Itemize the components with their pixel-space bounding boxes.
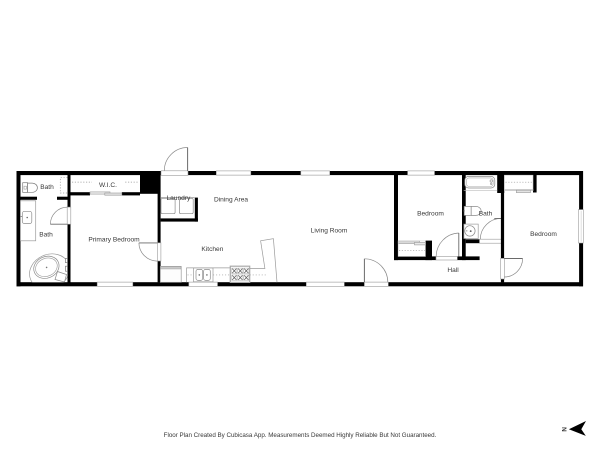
svg-text:Kitchen: Kitchen [201,246,223,253]
svg-text:Bedroom: Bedroom [417,210,444,217]
svg-text:N: N [560,427,567,432]
svg-text:Living Room: Living Room [311,227,348,234]
svg-text:Bedroom: Bedroom [530,231,557,238]
svg-text:Hall: Hall [447,267,459,274]
svg-text:Bath: Bath [40,184,54,191]
svg-text:Bath: Bath [479,210,493,217]
svg-text:W.I.C.: W.I.C. [99,182,117,189]
svg-text:Laundry: Laundry [166,195,191,202]
svg-text:Primary Bedroom: Primary Bedroom [88,237,140,244]
svg-text:Dining Area: Dining Area [214,197,248,204]
svg-text:Bath: Bath [39,231,53,238]
svg-text:Floor Plan Created By Cubicasa: Floor Plan Created By Cubicasa App. Meas… [164,432,437,439]
